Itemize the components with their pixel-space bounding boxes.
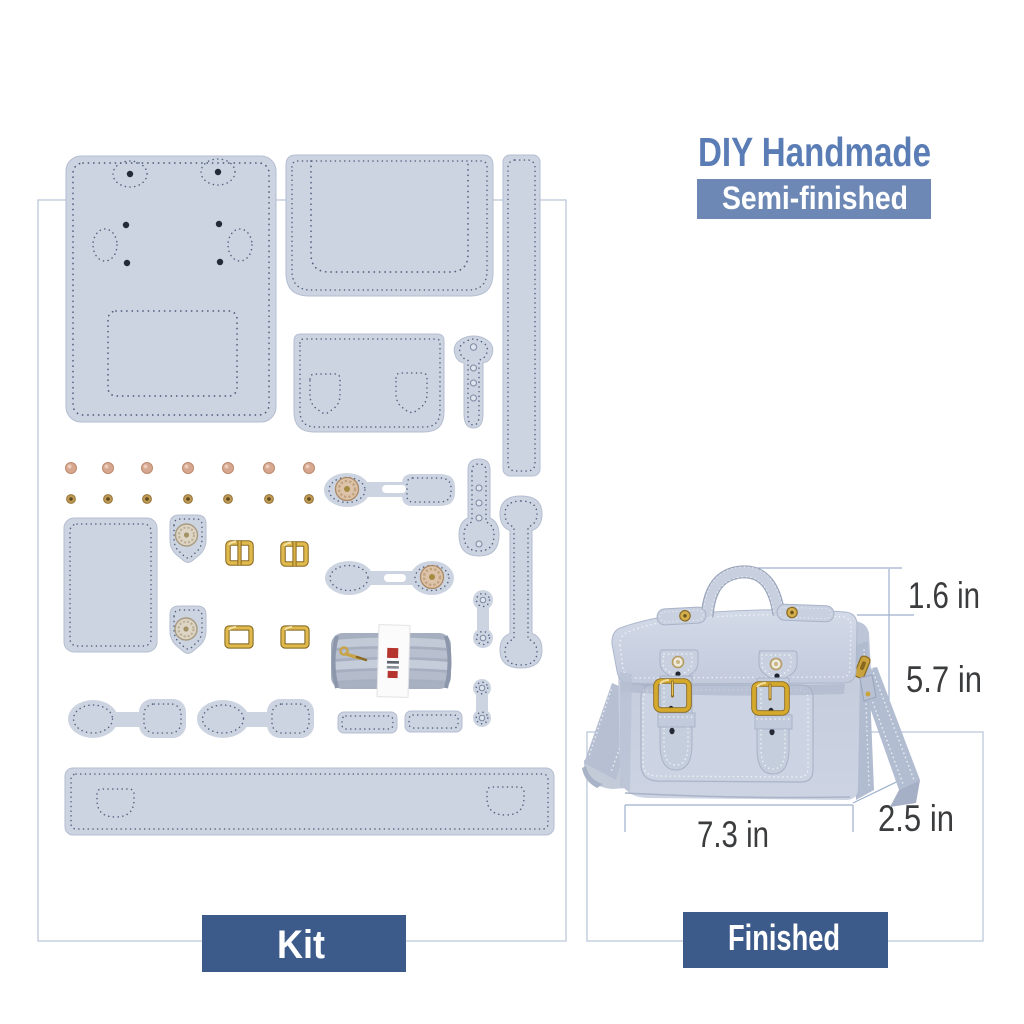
svg-text:5.7 in: 5.7 in — [906, 659, 982, 700]
svg-text:DIY Handmade: DIY Handmade — [698, 129, 931, 175]
svg-text:Kit: Kit — [277, 923, 325, 967]
svg-text:1.6 in: 1.6 in — [908, 575, 980, 616]
svg-text:Semi-finished: Semi-finished — [722, 180, 908, 216]
svg-text:7.3 in: 7.3 in — [697, 814, 769, 855]
svg-text:Finished: Finished — [728, 917, 840, 958]
svg-text:2.5 in: 2.5 in — [878, 798, 954, 839]
